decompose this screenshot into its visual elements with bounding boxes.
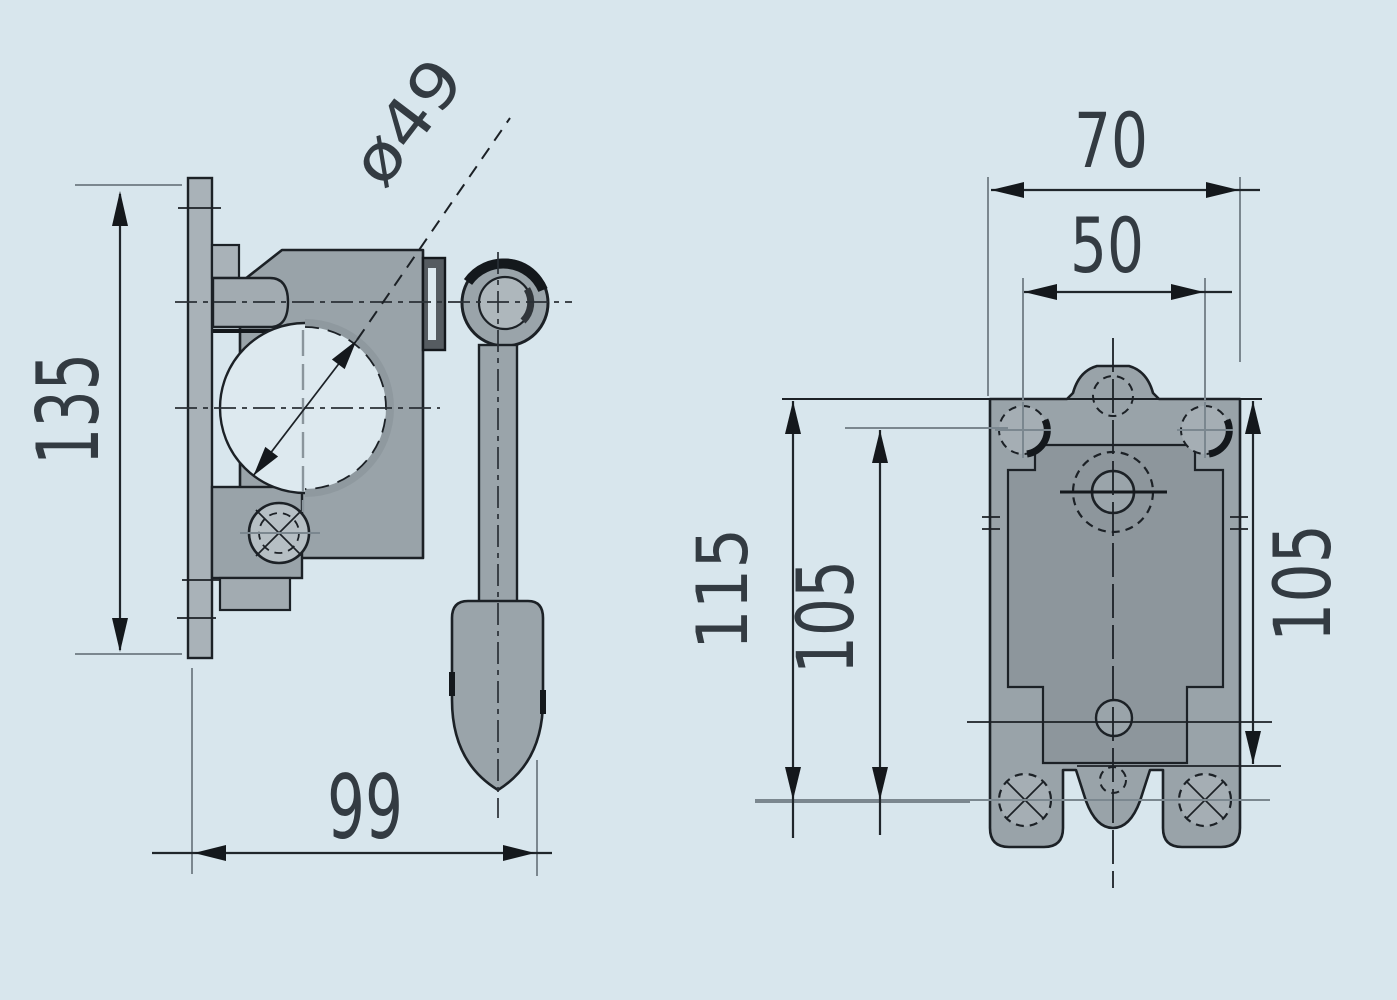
height-dimension-label: 135 [19,353,119,465]
front-view: 70 50 115 105 [682,96,1349,888]
technical-drawing-canvas: ø49 135 99 [0,0,1397,1000]
edge-to-hole-height-label: 115 [682,528,764,650]
right-height-label: 105 [1259,524,1349,642]
clamp-body [212,250,423,610]
bore-diameter-label: ø49 [337,45,479,200]
hole-spacing-height-label: 105 [782,560,872,674]
hole-spacing-width-label: 50 [1070,201,1144,290]
lever-hub [462,260,548,346]
overall-width-label: 70 [1074,96,1148,185]
width-dimension-label: 99 [327,756,403,859]
dim-height-135: 135 [19,185,182,654]
side-view: ø49 135 99 [19,45,572,876]
dim-right-height-105: 105 [1245,401,1349,764]
drawing-sheet: ø49 135 99 [0,0,1397,1000]
dim-hole-height-105: 105 [782,428,1008,835]
clamp-screw-head [423,258,445,350]
